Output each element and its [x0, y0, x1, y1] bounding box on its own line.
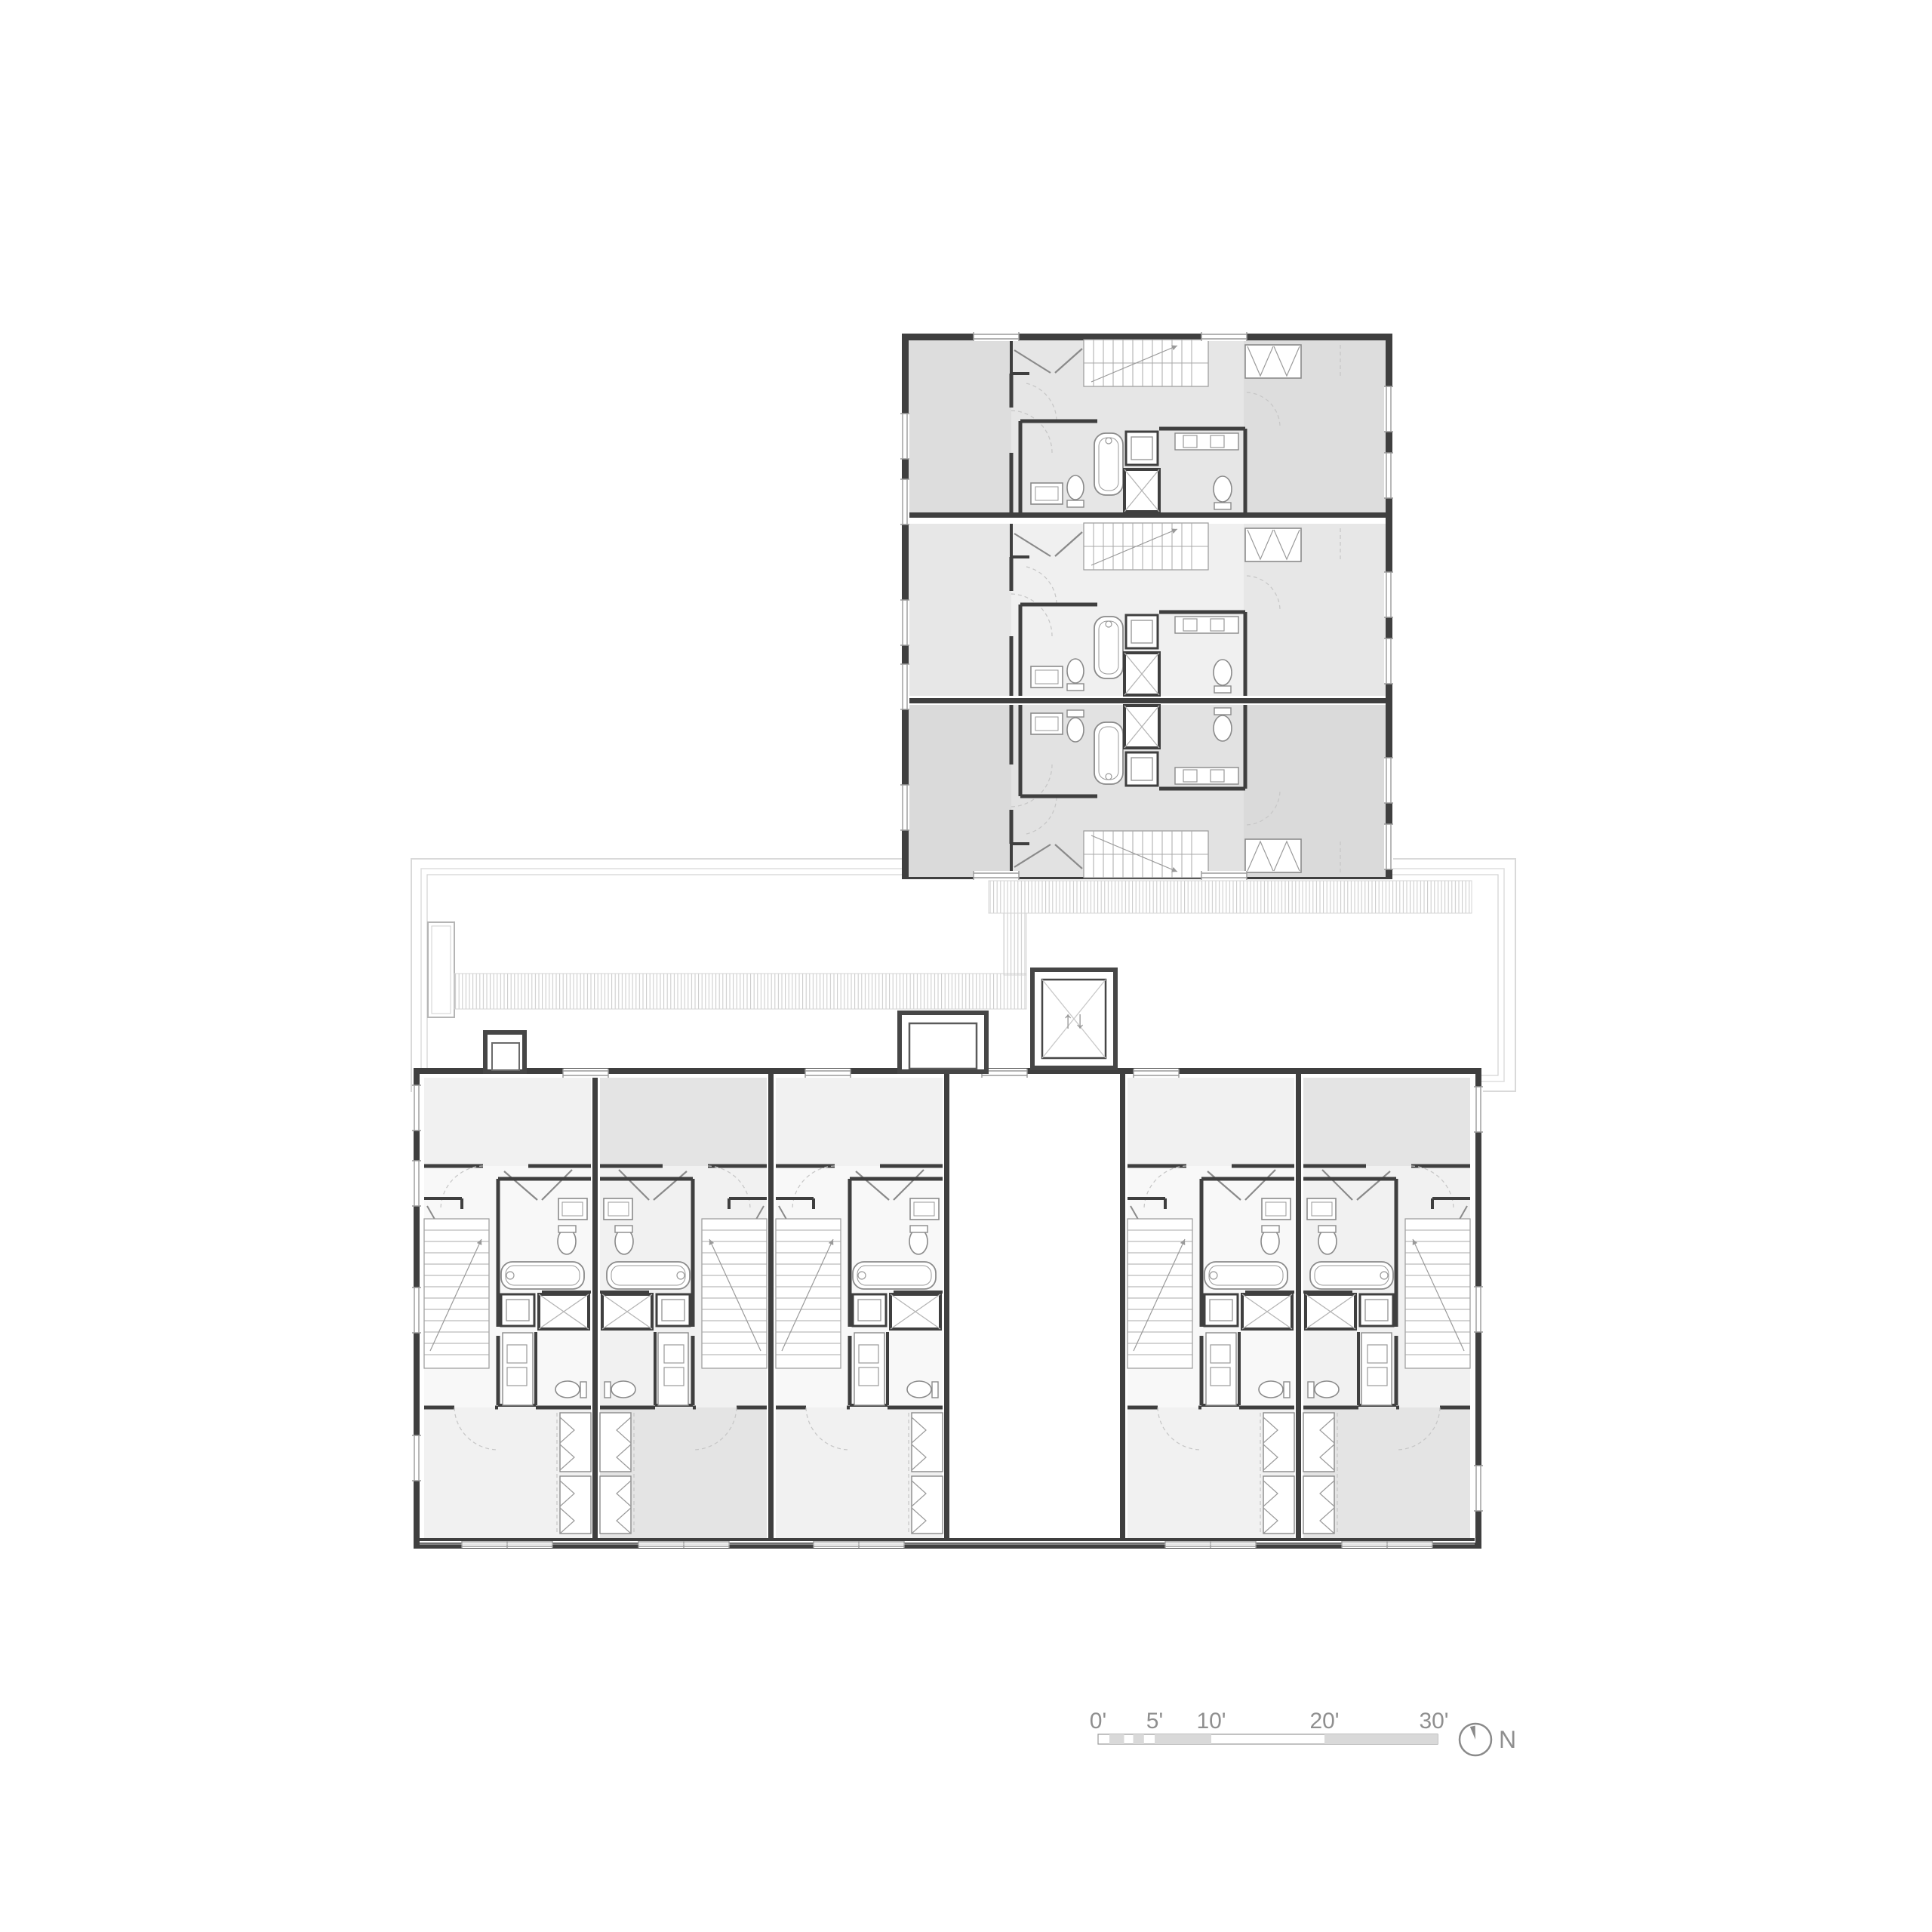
window — [412, 1085, 421, 1131]
upper-flat-3 — [909, 705, 1386, 878]
window — [1474, 1087, 1483, 1132]
window — [900, 785, 909, 830]
planter — [428, 922, 454, 1017]
window — [1384, 758, 1393, 803]
party-wall — [909, 512, 1386, 518]
party-wall — [1120, 1074, 1125, 1540]
scale-label-0: 0' — [1090, 1709, 1106, 1734]
scale-label-30: 30' — [1419, 1709, 1448, 1734]
window — [412, 1287, 421, 1333]
window — [900, 414, 909, 459]
window — [1384, 453, 1393, 498]
window — [1474, 1466, 1483, 1511]
north-label: N — [1499, 1726, 1516, 1753]
scale-segment — [1324, 1734, 1438, 1744]
roof-skylight — [485, 1032, 525, 1072]
window — [900, 664, 909, 709]
roof-bulkhead — [900, 1013, 986, 1072]
slatted-walkway — [454, 881, 1472, 1009]
scale-label-20: 20' — [1309, 1709, 1339, 1734]
upper-flat-2 — [909, 523, 1386, 696]
party-wall — [592, 1074, 598, 1540]
window — [1384, 386, 1393, 432]
scale-segment — [1134, 1734, 1144, 1744]
window — [974, 871, 1019, 880]
plan-sheet: ↑↓ 0' 5' 10' 20' 30' N — [0, 0, 1932, 1932]
window — [1201, 332, 1247, 341]
north-arrow-icon: N — [1460, 1724, 1516, 1755]
window — [805, 1069, 851, 1078]
scale-label-5: 5' — [1146, 1709, 1163, 1734]
rowhouse-4 — [1303, 1078, 1470, 1548]
window — [1384, 572, 1393, 617]
window — [563, 1069, 608, 1078]
upper-block — [900, 332, 1393, 880]
rowhouse-1 — [424, 1078, 591, 1548]
window — [900, 479, 909, 525]
north-needle — [1470, 1726, 1478, 1740]
window — [1134, 1069, 1179, 1078]
rowhouse-3 — [776, 1078, 943, 1548]
elevator: ↑↓ — [1032, 970, 1115, 1068]
elevator-arrows-icon: ↑↓ — [1062, 1006, 1086, 1033]
scale-segment — [1155, 1734, 1211, 1744]
rowhouse-5 — [1128, 1078, 1294, 1548]
window — [1474, 1287, 1483, 1332]
party-wall — [909, 698, 1386, 703]
window — [1201, 871, 1247, 880]
party-wall — [1296, 1074, 1301, 1540]
window — [974, 332, 1019, 341]
scale-label-10: 10' — [1196, 1709, 1226, 1734]
lower-block: ↑↓ — [412, 970, 1932, 1548]
window — [900, 600, 909, 645]
window — [412, 1435, 421, 1481]
floor-plan-drawing: ↑↓ 0' 5' 10' 20' 30' N — [0, 0, 1932, 1932]
rowhouse-2 — [600, 1078, 767, 1548]
window — [1384, 638, 1393, 684]
party-wall — [944, 1074, 949, 1540]
scale-segment — [1109, 1734, 1124, 1744]
window — [412, 1161, 421, 1206]
scale-bar: 0' 5' 10' 20' 30' — [1090, 1709, 1449, 1744]
window — [1384, 824, 1393, 869]
upper-flat-1 — [909, 340, 1386, 512]
party-wall — [768, 1074, 774, 1540]
